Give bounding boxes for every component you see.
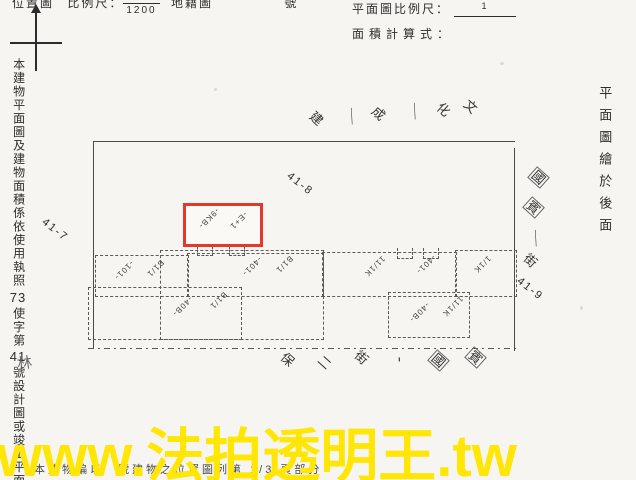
boundary-bottom xyxy=(88,348,516,349)
road-char: 街 xyxy=(521,251,539,269)
road-char: 國 xyxy=(527,166,550,189)
subject-building-outline xyxy=(183,203,263,247)
road-char: ＼ xyxy=(342,107,360,125)
lot-label-41-9: 41-9 xyxy=(514,275,545,303)
road-char: ＼ xyxy=(526,229,544,247)
cadastral-map: -9KB- -E+1 -101- B1/1 -401- B1/1 -40B- B… xyxy=(0,0,636,480)
road-char: ＼ xyxy=(405,102,423,120)
scan-speck xyxy=(214,88,217,91)
road-char: 建 xyxy=(307,109,325,127)
lot-label-41-7: 41-7 xyxy=(39,216,70,244)
scanned-document-page: 位置圖 比例尺：1200 地籍圖 號 平面圖比例尺：1 面積計算式： 本建物平面… xyxy=(0,0,636,480)
porch-stub xyxy=(197,246,213,256)
porch-stub xyxy=(397,248,413,259)
road-char: 、 xyxy=(395,350,413,368)
boundary-top xyxy=(93,141,515,142)
road-char: 二 xyxy=(315,353,333,371)
road-char: 保 xyxy=(278,350,296,368)
lot-label-41-8: 41-8 xyxy=(284,170,315,198)
road-char: 化 xyxy=(434,100,452,118)
road-char: 國 xyxy=(427,349,450,372)
road-char: 賓 xyxy=(522,196,545,219)
scan-speck xyxy=(580,306,583,310)
road-char: 賓 xyxy=(464,346,487,369)
scan-speck xyxy=(500,62,504,65)
road-char: 成 xyxy=(369,104,387,122)
road-char: 文 xyxy=(461,97,479,115)
porch-stub xyxy=(229,246,245,256)
watermark: www.法拍透明王.tw xyxy=(0,409,517,480)
road-char: 街 xyxy=(352,348,370,366)
